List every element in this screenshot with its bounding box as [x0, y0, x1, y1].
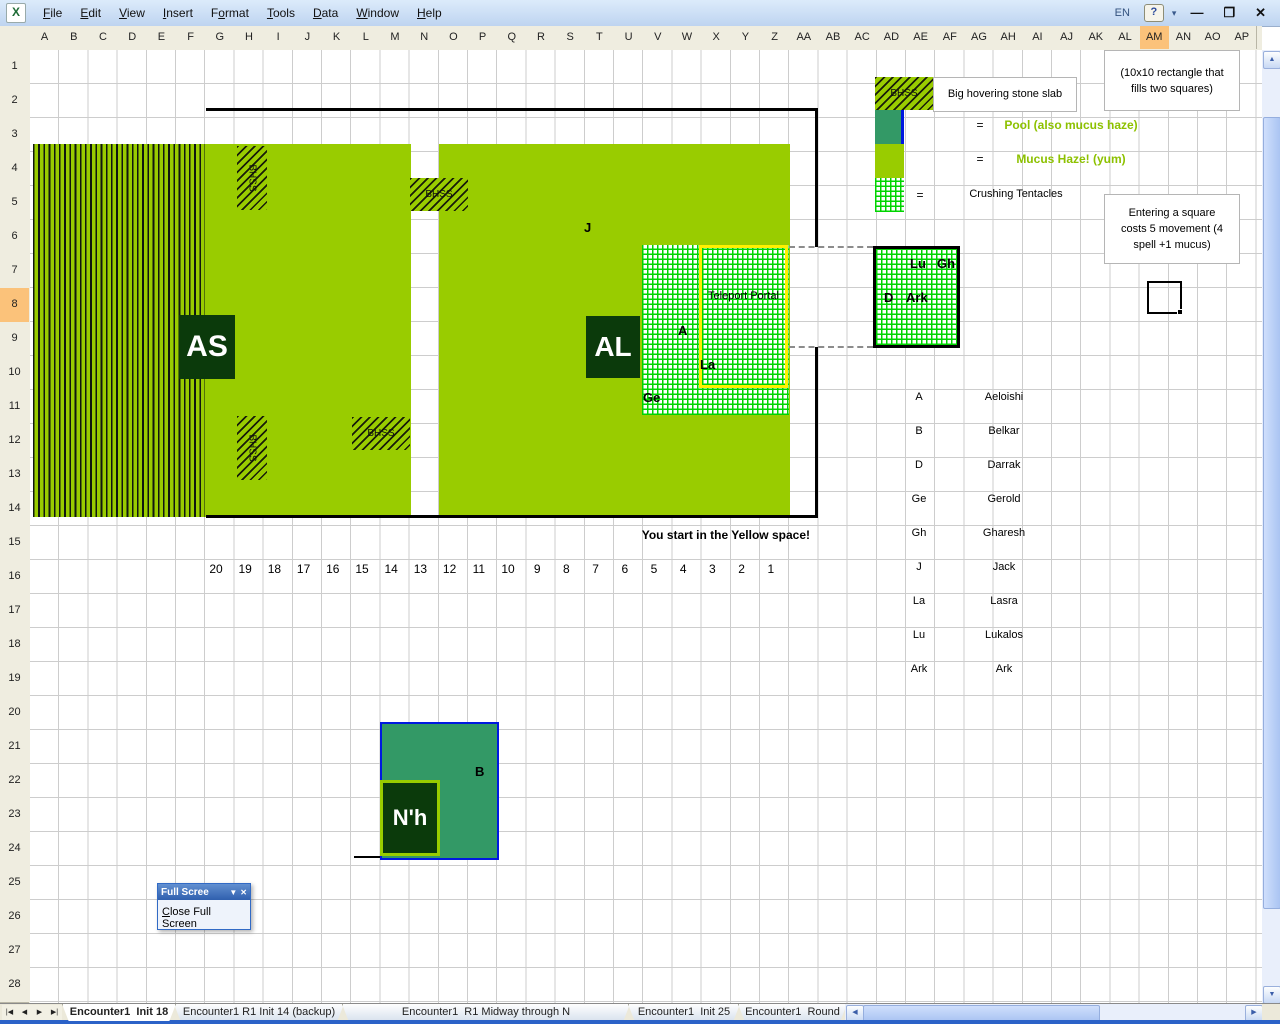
excel-app-icon: X	[6, 3, 26, 23]
token-d-label: D	[884, 290, 893, 305]
column-header-V[interactable]: V	[643, 26, 673, 49]
column-header-E[interactable]: E	[147, 26, 177, 49]
column-header-U[interactable]: U	[614, 26, 644, 49]
row-header-7[interactable]: 7	[0, 254, 29, 289]
name-full-La: Lasra	[934, 595, 1074, 613]
help-icon[interactable]: ?	[1144, 4, 1164, 22]
bhss-slab-4: BHSS	[352, 417, 410, 450]
movement-number-14: 14	[376, 562, 406, 576]
column-header-AL[interactable]: AL	[1110, 26, 1140, 49]
column-header-AD[interactable]: AD	[877, 26, 907, 49]
scroll-up-icon[interactable]: ▲	[1263, 51, 1280, 69]
close-full-screen-button[interactable]: Close Full Screen	[158, 900, 250, 936]
legend-pool-text: Pool (also mucus haze)	[995, 118, 1147, 132]
column-header-L[interactable]: L	[351, 26, 381, 49]
name-full-D: Darrak	[934, 459, 1074, 477]
column-header-Y[interactable]: Y	[731, 26, 761, 49]
bhss-slab-3: BHSS	[237, 416, 267, 480]
full-screen-toolbar: Full Scree ▼ ✕ Close Full Screen	[157, 883, 251, 930]
column-header-AB[interactable]: AB	[818, 26, 848, 49]
fill-handle[interactable]	[1177, 309, 1183, 315]
name-full-B: Belkar	[934, 425, 1074, 443]
legend-equals-1: =	[966, 118, 994, 132]
row-header-22[interactable]: 22	[0, 764, 29, 799]
column-header-AN[interactable]: AN	[1169, 26, 1199, 49]
name-abbr-D: D	[904, 459, 934, 477]
legend-tentacles-text: Crushing Tentacles	[936, 188, 1096, 200]
legend-pool-swatch	[875, 110, 904, 144]
row-header-9[interactable]: 9	[0, 322, 29, 357]
name-abbr-Gh: Gh	[904, 527, 934, 545]
menu-insert[interactable]: Insert	[154, 2, 202, 24]
row-header-15[interactable]: 15	[0, 526, 29, 561]
sheet-tab-1[interactable]: Encounter1 R1 Init 14 (backup)	[174, 1004, 344, 1021]
movement-number-16: 16	[318, 562, 348, 576]
note-10x10: (10x10 rectangle that fills two squares)	[1104, 50, 1240, 111]
note-10x10-line2: fills two squares)	[1105, 81, 1239, 97]
column-header-I[interactable]: I	[264, 26, 294, 49]
column-header-AJ[interactable]: AJ	[1052, 26, 1082, 49]
bhss-slab-1: BHSS	[237, 146, 267, 210]
legend-bhss-swatch: BHSS	[875, 77, 933, 110]
cell-border-mark	[354, 856, 380, 858]
movement-number-12: 12	[435, 562, 465, 576]
token-nh: N'h	[380, 780, 440, 856]
name-full-Ge: Gerold	[934, 493, 1074, 511]
row-header-19[interactable]: 19	[0, 662, 29, 697]
sheet-tab-2[interactable]: Encounter1 R1 Midway through N	[342, 1004, 630, 1021]
menu-bar: X FileEditViewInsertFormatToolsDataWindo…	[0, 0, 1280, 27]
menu-items: FileEditViewInsertFormatToolsDataWindowH…	[34, 2, 451, 24]
column-header-A[interactable]: A	[30, 26, 60, 49]
row-header-27[interactable]: 27	[0, 934, 29, 969]
movement-number-9: 9	[522, 562, 552, 576]
tab-nav-3-icon[interactable]: ▶|	[47, 1005, 62, 1020]
window-bottom-edge	[0, 1020, 1280, 1024]
column-header-K[interactable]: K	[322, 26, 352, 49]
column-header-AP[interactable]: AP	[1227, 26, 1257, 49]
row-header-14[interactable]: 14	[0, 492, 29, 527]
menu-tools[interactable]: Tools	[258, 2, 304, 24]
map-border-right-lower	[815, 347, 818, 518]
movement-number-3: 3	[697, 562, 727, 576]
token-b-label: B	[475, 764, 484, 779]
menu-format[interactable]: Format	[202, 2, 258, 24]
row-header-24[interactable]: 24	[0, 832, 29, 867]
toolbar-dropdown-icon[interactable]: ▼	[229, 888, 237, 897]
column-header-P[interactable]: P	[468, 26, 498, 49]
selected-cell[interactable]	[1147, 281, 1182, 314]
scroll-down-icon[interactable]: ▼	[1263, 986, 1280, 1004]
row-headers: 1234567891011121314151617181920212223242…	[0, 50, 31, 1003]
row-header-13[interactable]: 13	[0, 458, 29, 493]
bhss-slab-2: BHSS	[410, 178, 468, 211]
name-full-A: Aeloishi	[934, 391, 1074, 409]
column-header-AI[interactable]: AI	[1023, 26, 1053, 49]
name-abbr-Ge: Ge	[904, 493, 934, 511]
row-header-12[interactable]: 12	[0, 424, 29, 459]
menu-data[interactable]: Data	[304, 2, 347, 24]
row-header-17[interactable]: 17	[0, 594, 29, 629]
column-header-AA[interactable]: AA	[789, 26, 819, 49]
column-header-AK[interactable]: AK	[1081, 26, 1111, 49]
column-header-R[interactable]: R	[526, 26, 556, 49]
column-header-T[interactable]: T	[585, 26, 615, 49]
name-full-Ark: Ark	[934, 663, 1074, 681]
restore-icon[interactable]: ❐	[1217, 3, 1241, 23]
column-header-X[interactable]: X	[702, 26, 732, 49]
close-icon[interactable]: ✕	[1249, 3, 1272, 23]
row-header-6[interactable]: 6	[0, 220, 29, 255]
row-header-26[interactable]: 26	[0, 900, 29, 935]
toolbar-close-icon[interactable]: ✕	[240, 888, 247, 897]
sheet-tab-0[interactable]: Encounter1 Init 18	[62, 1004, 176, 1021]
left-room-mucus-region	[205, 144, 411, 517]
name-abbr-Ark: Ark	[904, 663, 934, 681]
column-header-Z[interactable]: Z	[760, 26, 790, 49]
token-lu-label: Lu	[910, 256, 926, 271]
column-header-AH[interactable]: AH	[994, 26, 1024, 49]
column-header-O[interactable]: O	[439, 26, 469, 49]
row-header-1[interactable]: 1	[0, 50, 29, 85]
name-full-J: Jack	[934, 561, 1074, 579]
start-space-text: You start in the Yellow space!	[560, 528, 810, 542]
row-header-25[interactable]: 25	[0, 866, 29, 901]
tab-nav-2-icon[interactable]: ▶	[32, 1005, 47, 1020]
column-header-B[interactable]: B	[59, 26, 89, 49]
legend-equals-2: =	[966, 152, 994, 166]
row-header-11[interactable]: 11	[0, 390, 29, 425]
legend-tentacles-swatch	[875, 178, 904, 212]
row-header-3[interactable]: 3	[0, 118, 29, 153]
horizontal-scrollbar[interactable]: ◀ ▶	[845, 1003, 1262, 1021]
sheet-tab-3[interactable]: Encounter1 Init 25	[628, 1004, 740, 1021]
name-abbr-B: B	[904, 425, 934, 443]
column-header-D[interactable]: D	[118, 26, 148, 49]
token-gh-label: Gh	[937, 256, 955, 271]
sheet-tab-4[interactable]: Encounter1 Round	[738, 1004, 847, 1021]
movement-number-6: 6	[610, 562, 640, 576]
column-header-AF[interactable]: AF	[935, 26, 965, 49]
column-header-Q[interactable]: Q	[497, 26, 527, 49]
map-border-bottom	[206, 515, 818, 518]
column-header-N[interactable]: N	[410, 26, 440, 49]
column-header-G[interactable]: G	[205, 26, 235, 49]
movement-number-10: 10	[493, 562, 523, 576]
row-header-16[interactable]: 16	[0, 560, 29, 595]
vertical-scroll-thumb[interactable]	[1263, 117, 1280, 909]
column-header-S[interactable]: S	[556, 26, 586, 49]
token-ark-label: Ark	[906, 290, 928, 305]
token-as: AS	[179, 315, 235, 379]
column-header-AO[interactable]: AO	[1198, 26, 1228, 49]
column-header-AG[interactable]: AG	[964, 26, 994, 49]
movement-number-15: 15	[347, 562, 377, 576]
menu-window[interactable]: Window	[347, 2, 408, 24]
movement-number-4: 4	[668, 562, 698, 576]
movement-number-5: 5	[639, 562, 669, 576]
column-header-J[interactable]: J	[293, 26, 323, 49]
movement-number-17: 17	[289, 562, 319, 576]
sheet-grid[interactable]: BHSS BHSS BHSS BHSS AS AL J Teleport Por…	[30, 50, 1262, 1003]
column-headers: ABCDEFGHIJKLMNOPQRSTUVWXYZAAABACADAEAFAG…	[0, 26, 1262, 51]
column-header-M[interactable]: M	[380, 26, 410, 49]
menu-right-controls: EN ? ▾ — ❐ ✕	[1109, 3, 1280, 23]
column-header-AC[interactable]: AC	[848, 26, 878, 49]
menu-file[interactable]: File	[34, 2, 71, 24]
note-enter-line1: Entering a square	[1105, 205, 1239, 221]
teleport-link-line-bottom	[789, 346, 873, 348]
row-header-5[interactable]: 5	[0, 186, 29, 221]
movement-number-18: 18	[259, 562, 289, 576]
vertical-scrollbar[interactable]: ▲ ▼	[1262, 50, 1280, 1003]
row-header-21[interactable]: 21	[0, 730, 29, 765]
column-header-C[interactable]: C	[88, 26, 118, 49]
movement-number-11: 11	[464, 562, 494, 576]
legend-equals-3: =	[906, 188, 934, 202]
movement-number-19: 19	[230, 562, 260, 576]
movement-number-13: 13	[405, 562, 435, 576]
name-abbr-La: La	[904, 595, 934, 613]
token-la-label: La	[700, 357, 715, 372]
name-full-Lu: Lukalos	[934, 629, 1074, 647]
note-10x10-line1: (10x10 rectangle that	[1105, 65, 1239, 81]
name-full-Gh: Gharesh	[934, 527, 1074, 545]
menu-edit[interactable]: Edit	[71, 2, 110, 24]
full-screen-toolbar-titlebar[interactable]: Full Scree ▼ ✕	[158, 884, 250, 900]
toolbar-options-icon[interactable]: ▾	[1172, 8, 1177, 19]
token-a-label: A	[678, 323, 687, 338]
name-abbr-J: J	[904, 561, 934, 579]
teleport-link-line-top	[789, 246, 873, 248]
column-header-AE[interactable]: AE	[906, 26, 936, 49]
movement-number-2: 2	[727, 562, 757, 576]
row-header-28[interactable]: 28	[0, 968, 29, 1003]
menu-view[interactable]: View	[110, 2, 154, 24]
movement-number-8: 8	[551, 562, 581, 576]
row-header-23[interactable]: 23	[0, 798, 29, 833]
menu-help[interactable]: Help	[408, 2, 451, 24]
movement-number-7: 7	[581, 562, 611, 576]
token-al: AL	[586, 316, 640, 378]
name-abbr-Lu: Lu	[904, 629, 934, 647]
language-indicator[interactable]: EN	[1109, 5, 1136, 21]
column-header-H[interactable]: H	[234, 26, 264, 49]
row-header-4[interactable]: 4	[0, 152, 29, 187]
map-border-top	[206, 108, 818, 111]
excel-window: X FileEditViewInsertFormatToolsDataWindo…	[0, 0, 1280, 1024]
legend-mucus-text: Mucus Haze! (yum)	[995, 152, 1147, 166]
map-border-right-upper	[815, 108, 818, 247]
row-header-18[interactable]: 18	[0, 628, 29, 663]
row-header-10[interactable]: 10	[0, 356, 29, 391]
legend-mucus-swatch	[875, 144, 904, 178]
tab-nav-1-icon[interactable]: ◀	[17, 1005, 32, 1020]
column-header-AM[interactable]: AM	[1140, 26, 1170, 49]
note-enter-line2: costs 5 movement (4	[1105, 221, 1239, 237]
note-enter-line3: spell +1 mucus)	[1105, 237, 1239, 253]
name-abbr-A: A	[904, 391, 934, 409]
token-ge-label: Ge	[643, 390, 660, 405]
row-header-2[interactable]: 2	[0, 84, 29, 119]
full-screen-toolbar-title: Full Scree	[161, 887, 226, 898]
column-header-W[interactable]: W	[672, 26, 702, 49]
column-header-F[interactable]: F	[176, 26, 206, 49]
movement-number-20: 20	[201, 562, 231, 576]
tab-nav-0-icon[interactable]: |◀	[2, 1005, 17, 1020]
movement-number-1: 1	[756, 562, 786, 576]
row-header-20[interactable]: 20	[0, 696, 29, 731]
token-j-label: J	[584, 220, 591, 235]
minimize-icon[interactable]: —	[1184, 3, 1209, 23]
legend-bhss-text: Big hovering stone slab	[933, 77, 1077, 112]
row-header-8[interactable]: 8	[0, 288, 29, 323]
note-entering-cost: Entering a square costs 5 movement (4 sp…	[1104, 194, 1240, 264]
scrollbar-corner	[1262, 1003, 1280, 1021]
